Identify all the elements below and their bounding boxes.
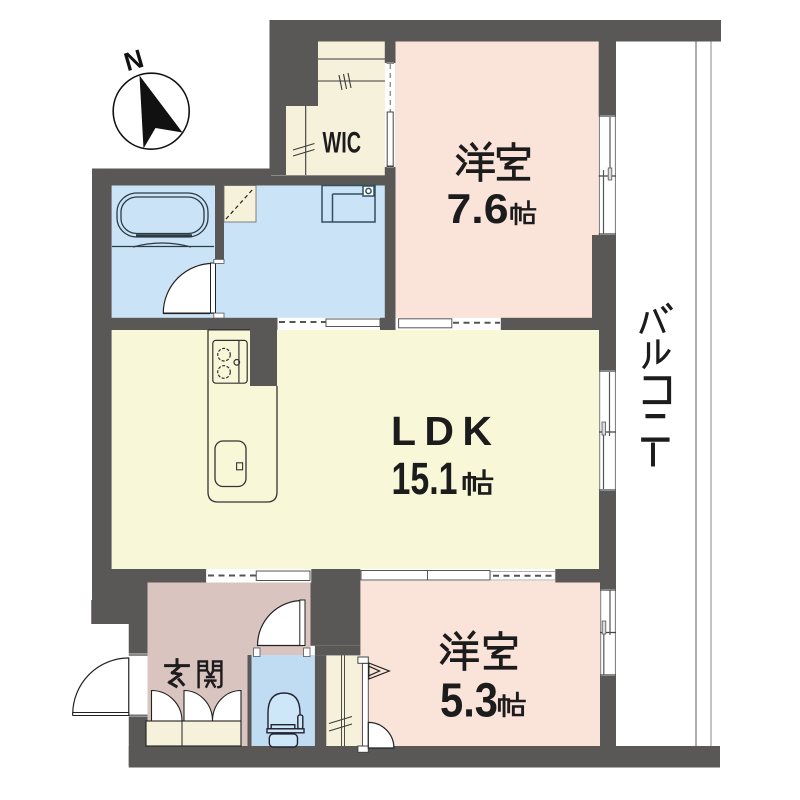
svg-text:7.6: 7.6 [447, 185, 509, 232]
svg-text:LDK: LDK [391, 408, 492, 454]
svg-text:15.1: 15.1 [392, 453, 458, 504]
svg-text:WIC: WIC [323, 127, 362, 160]
svg-text:5.3: 5.3 [440, 675, 498, 728]
